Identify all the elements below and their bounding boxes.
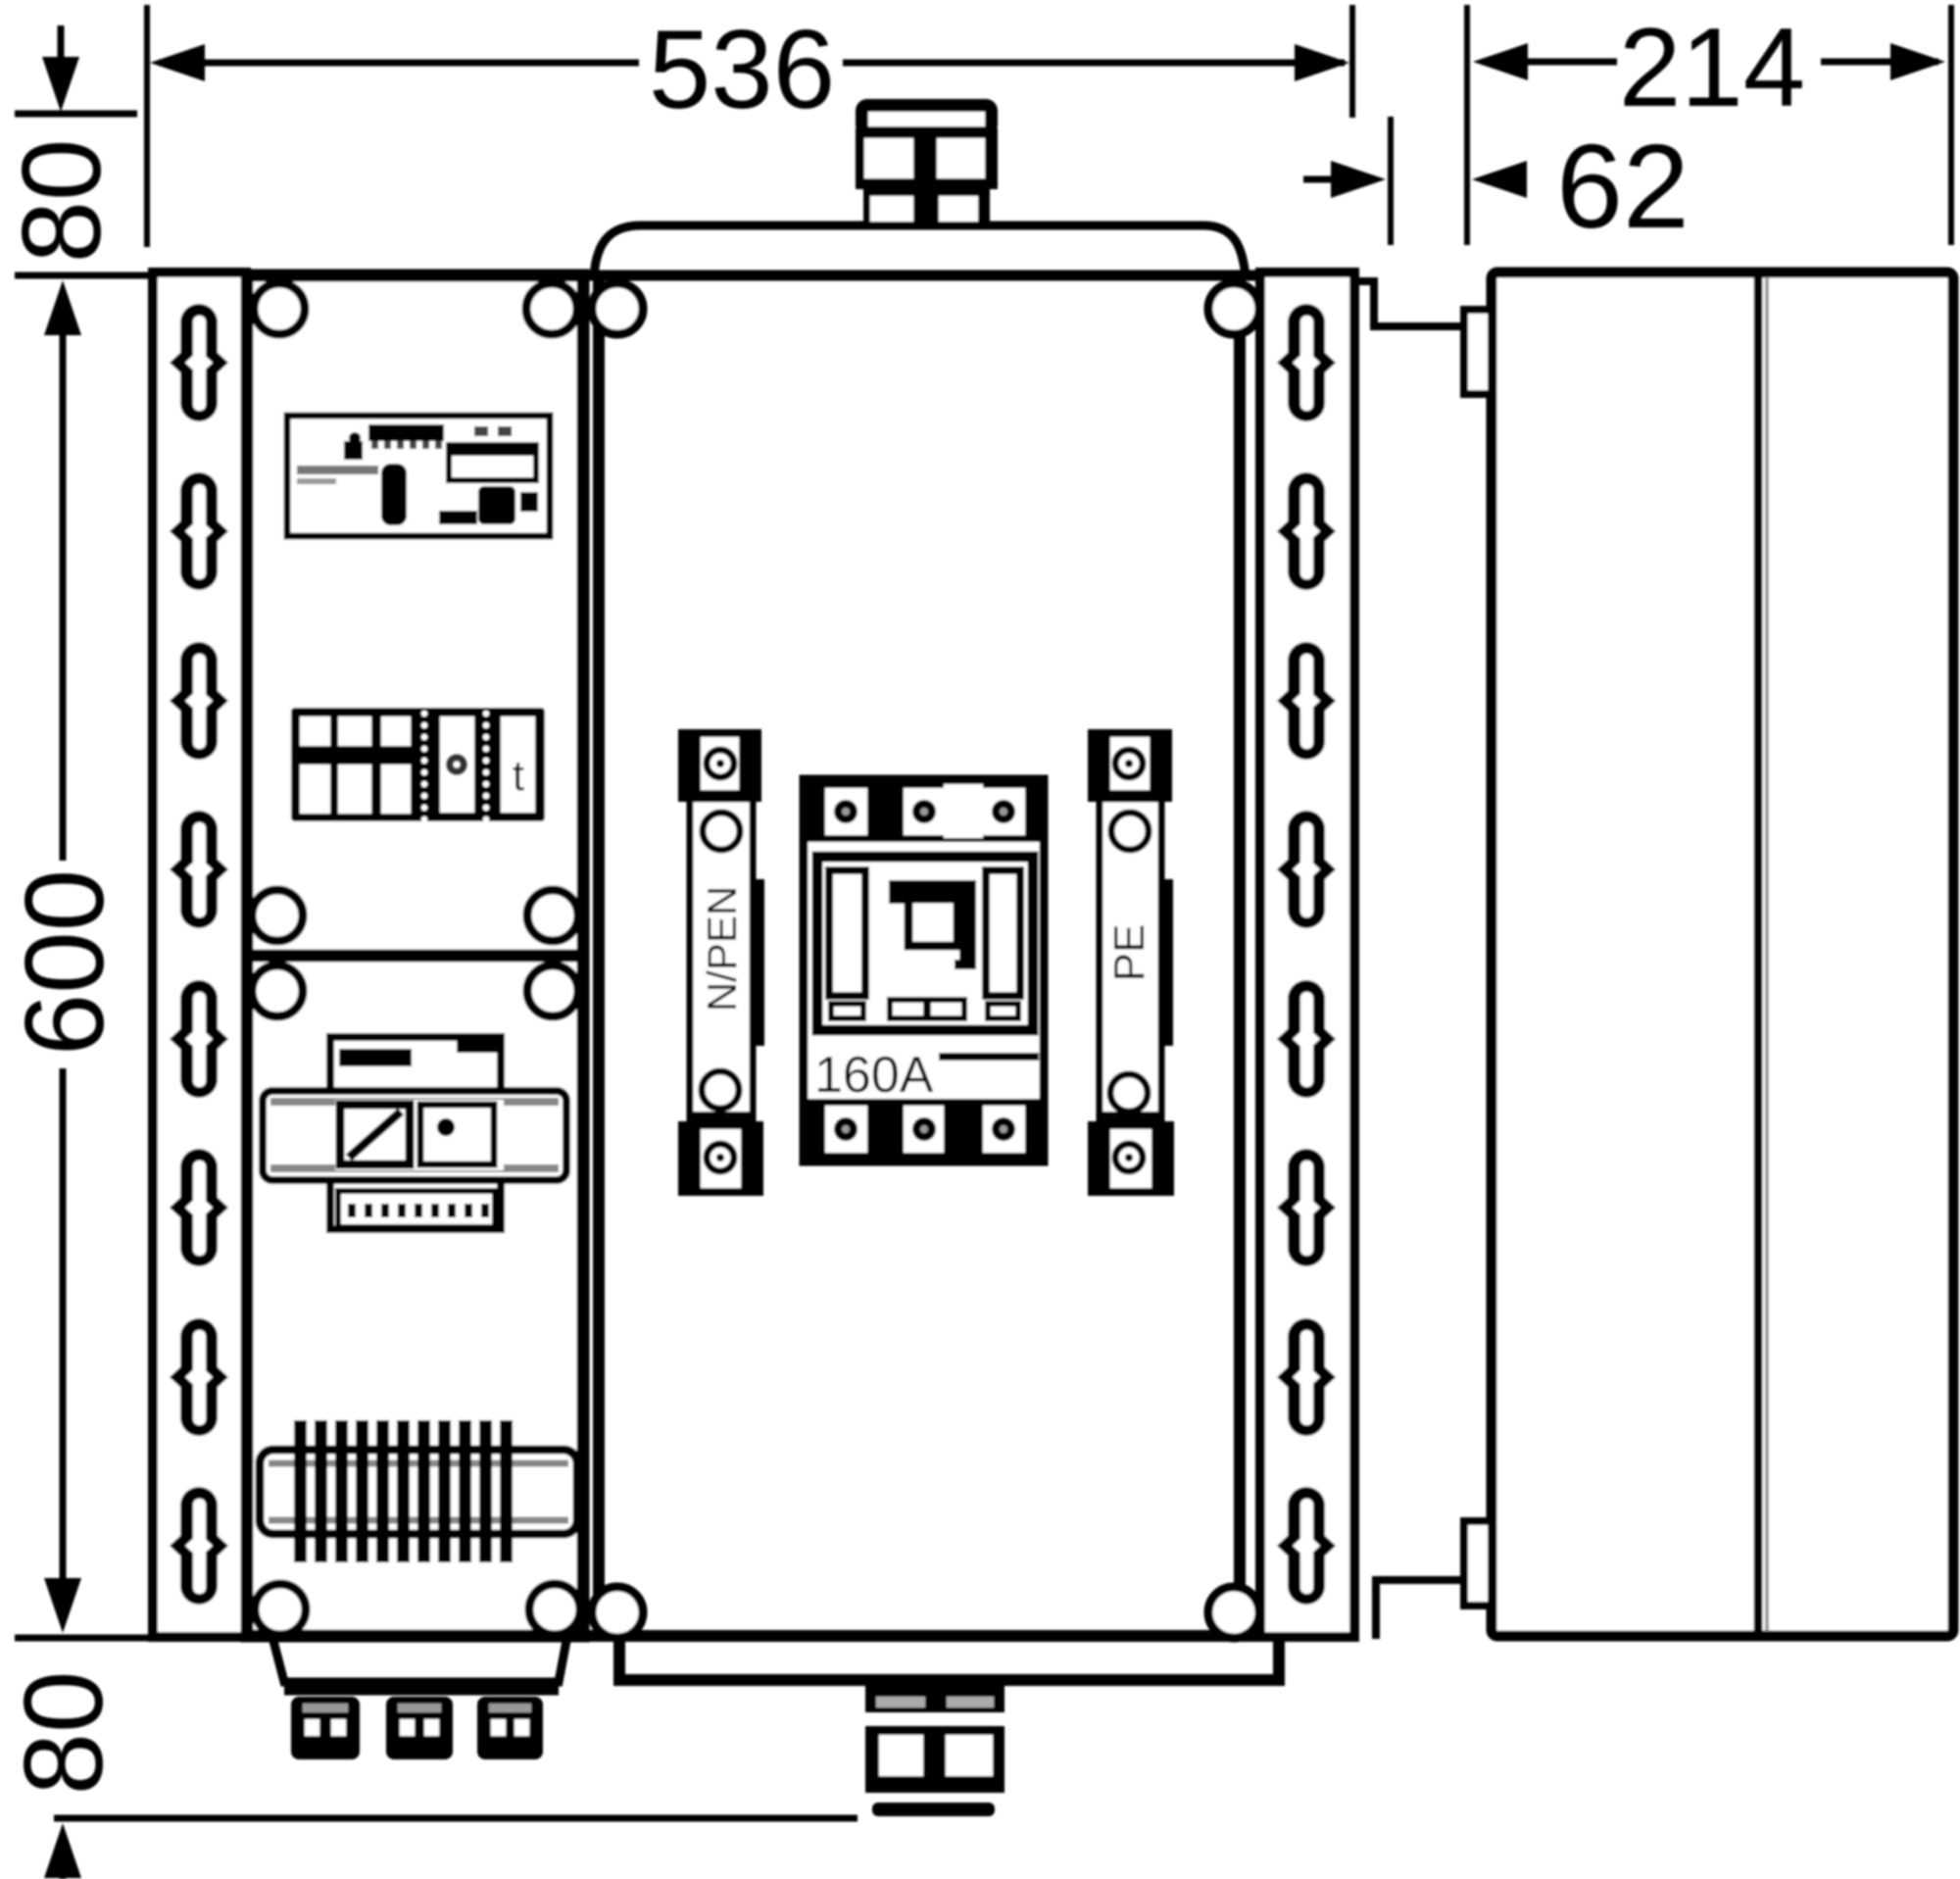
svg-text:80: 80: [2, 1671, 126, 1796]
svg-text:80: 80: [0, 139, 124, 264]
svg-text:62: 62: [1556, 120, 1690, 253]
svg-text:600: 600: [3, 869, 127, 1056]
svg-text:t: t: [513, 752, 524, 800]
svg-text:PE: PE: [1105, 924, 1153, 982]
svg-text:N/PEN: N/PEN: [699, 886, 745, 1012]
svg-text:160A: 160A: [814, 1047, 934, 1104]
svg-text:214: 214: [1619, 6, 1805, 130]
svg-text:536: 536: [649, 8, 835, 132]
